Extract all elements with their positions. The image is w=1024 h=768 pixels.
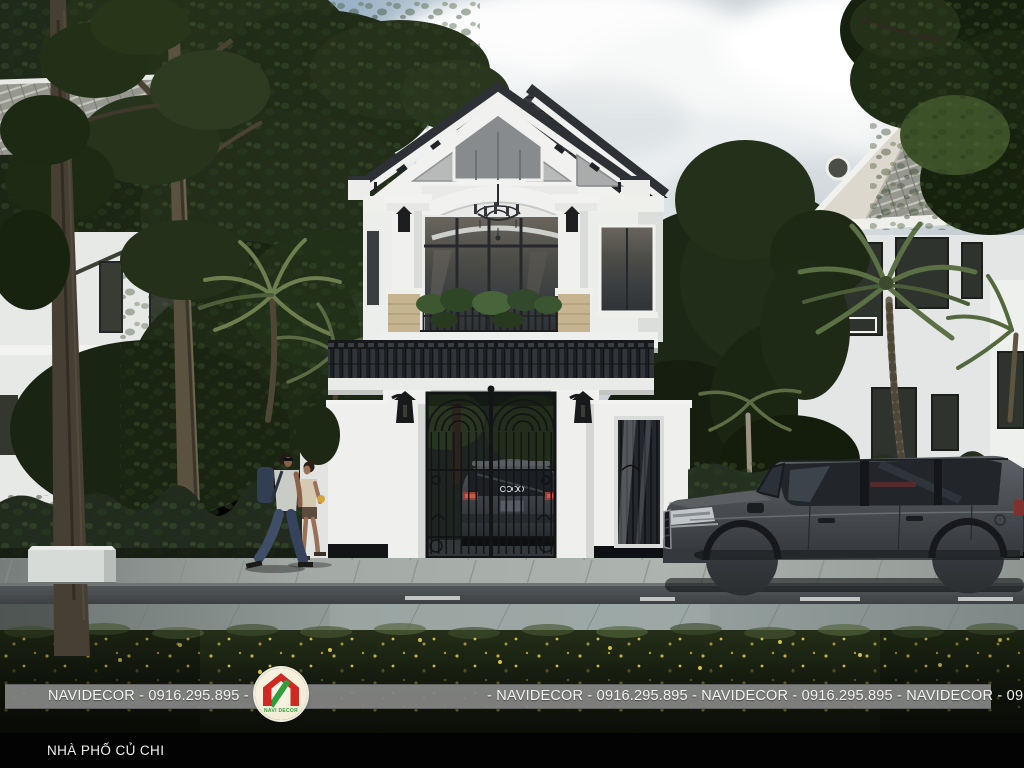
navidecor-logo: NAVI DECOR: [255, 668, 307, 720]
wrought-iron-gate: [426, 386, 556, 562]
architectural-render-screenshot: NAVIDECOR - 0916.295.895 - - NAVIDECOR -…: [0, 0, 1024, 768]
curb-planter: [28, 546, 116, 584]
logo-wordmark: NAVI DECOR: [255, 708, 307, 714]
iron-side-door: [614, 416, 664, 548]
watermark-banner: NAVIDECOR - 0916.295.895 - - NAVIDECOR -…: [5, 684, 991, 709]
caption-text: NHÀ PHỐ CỦ CHI: [47, 733, 164, 768]
street-scene: [0, 0, 1024, 735]
round-gable-window: [827, 157, 849, 179]
upper-left-window: [366, 230, 380, 306]
grass-foreground: [0, 623, 1024, 735]
banner-text-left: NAVIDECOR - 0916.295.895 -: [48, 685, 249, 708]
road: [0, 586, 1024, 632]
caption-bar: NHÀ PHỐ CỦ CHI: [0, 733, 1024, 768]
banner-text-right: - NAVIDECOR - 0916.295.895 - NAVIDECOR -…: [487, 685, 1024, 708]
fence-gate-structure: [296, 340, 692, 562]
